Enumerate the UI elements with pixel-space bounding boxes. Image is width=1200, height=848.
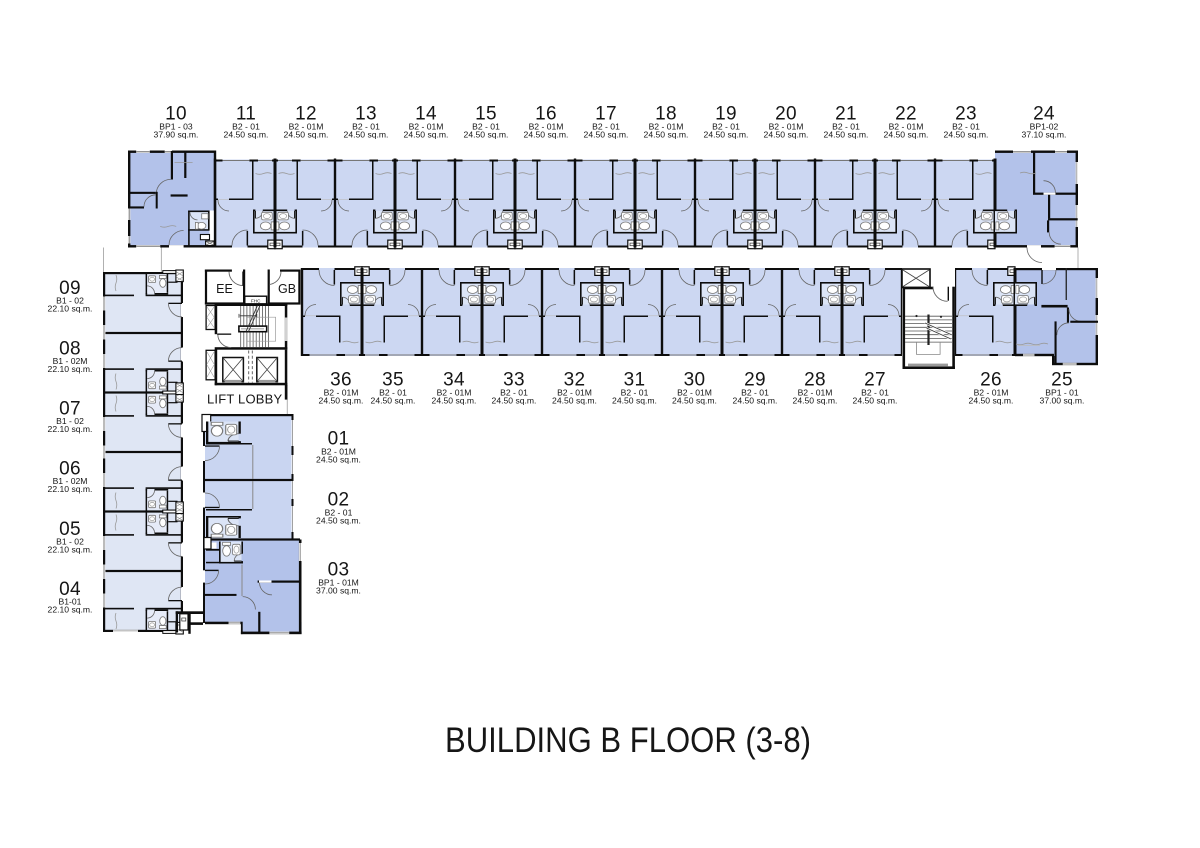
svg-text:LIFT LOBBY: LIFT LOBBY	[207, 392, 283, 407]
svg-text:24.50 sq.m.: 24.50 sq.m.	[284, 130, 329, 140]
svg-text:24.50 sq.m.: 24.50 sq.m.	[584, 130, 629, 140]
svg-text:GB: GB	[278, 282, 296, 296]
svg-text:24.50 sq.m.: 24.50 sq.m.	[404, 130, 449, 140]
svg-text:24.50 sq.m.: 24.50 sq.m.	[524, 130, 569, 140]
svg-text:37.00 sq.m.: 37.00 sq.m.	[316, 586, 361, 596]
svg-text:24.50 sq.m.: 24.50 sq.m.	[824, 130, 869, 140]
svg-text:24.50 sq.m.: 24.50 sq.m.	[733, 395, 778, 405]
svg-text:24.50 sq.m.: 24.50 sq.m.	[704, 130, 749, 140]
svg-text:24.50 sq.m.: 24.50 sq.m.	[644, 130, 689, 140]
svg-text:22.10 sq.m.: 22.10 sq.m.	[48, 364, 93, 374]
svg-text:24.50 sq.m.: 24.50 sq.m.	[764, 130, 809, 140]
svg-text:FHC: FHC	[251, 298, 261, 303]
svg-text:24.50 sq.m.: 24.50 sq.m.	[884, 130, 929, 140]
svg-text:22.10 sq.m.: 22.10 sq.m.	[48, 484, 93, 494]
svg-text:37.00 sq.m.: 37.00 sq.m.	[1040, 395, 1085, 405]
svg-text:24.50 sq.m.: 24.50 sq.m.	[464, 130, 509, 140]
svg-text:22.10 sq.m.: 22.10 sq.m.	[48, 605, 93, 615]
svg-text:37.90 sq.m.: 37.90 sq.m.	[154, 130, 199, 140]
svg-text:24.50 sq.m.: 24.50 sq.m.	[612, 395, 657, 405]
svg-text:24.50 sq.m.: 24.50 sq.m.	[853, 395, 898, 405]
svg-text:24.50 sq.m.: 24.50 sq.m.	[969, 395, 1014, 405]
svg-text:24.50 sq.m.: 24.50 sq.m.	[344, 130, 389, 140]
svg-text:22.10 sq.m.: 22.10 sq.m.	[48, 304, 93, 314]
svg-text:24.50 sq.m.: 24.50 sq.m.	[793, 395, 838, 405]
svg-text:24.50 sq.m.: 24.50 sq.m.	[944, 130, 989, 140]
svg-text:24.50 sq.m.: 24.50 sq.m.	[319, 395, 364, 405]
svg-text:24.50 sq.m.: 24.50 sq.m.	[316, 516, 361, 526]
svg-text:22.10 sq.m.: 22.10 sq.m.	[48, 424, 93, 434]
svg-text:EE: EE	[216, 282, 233, 296]
svg-text:24.50 sq.m.: 24.50 sq.m.	[371, 395, 416, 405]
svg-text:24.50 sq.m.: 24.50 sq.m.	[432, 395, 477, 405]
svg-text:24.50 sq.m.: 24.50 sq.m.	[316, 455, 361, 465]
svg-text:24.50 sq.m.: 24.50 sq.m.	[224, 130, 269, 140]
svg-text:37.10 sq.m.: 37.10 sq.m.	[1022, 130, 1067, 140]
svg-text:24.50 sq.m.: 24.50 sq.m.	[552, 395, 597, 405]
svg-text:BUILDING B FLOOR (3-8): BUILDING B FLOOR (3-8)	[445, 721, 811, 760]
svg-text:22.10 sq.m.: 22.10 sq.m.	[48, 545, 93, 555]
svg-text:24.50 sq.m.: 24.50 sq.m.	[672, 395, 717, 405]
svg-text:24.50 sq.m.: 24.50 sq.m.	[492, 395, 537, 405]
